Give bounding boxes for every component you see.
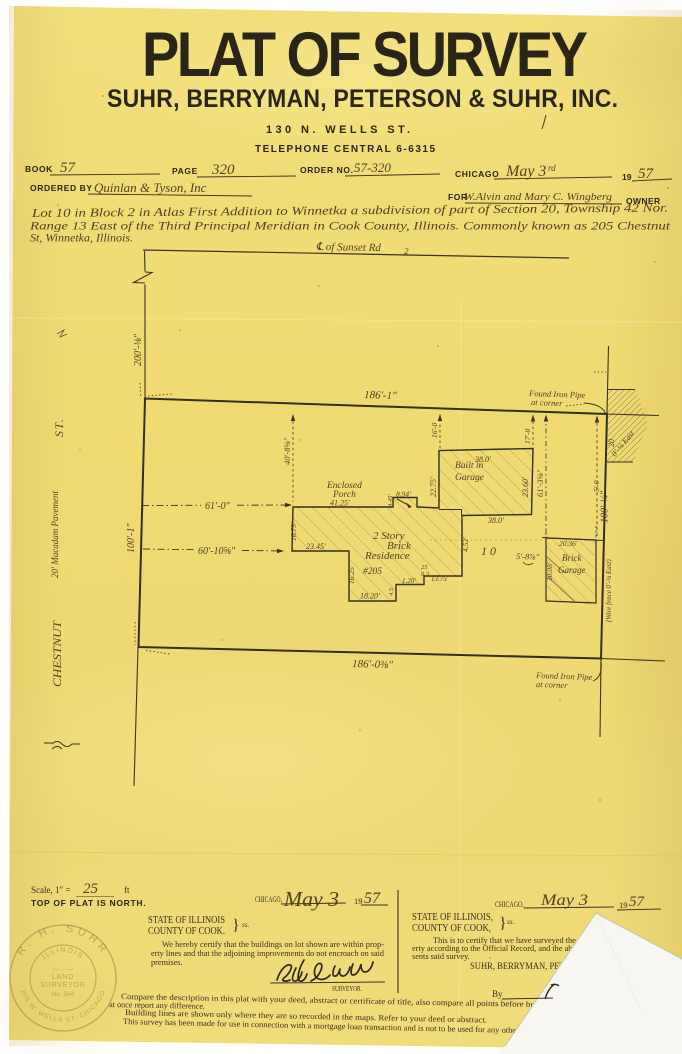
svg-text:May 3: May 3: [540, 892, 588, 909]
svg-text:ORDER NO.: ORDER NO.: [300, 165, 354, 175]
svg-text:18.20′: 18.20′: [360, 592, 380, 601]
svg-text:COUNTY OF COOK,: COUNTY OF COOK,: [412, 923, 491, 934]
svg-text:}: }: [499, 915, 507, 932]
svg-text:20.36′: 20.36′: [559, 539, 578, 548]
svg-text:LAND: LAND: [52, 974, 75, 981]
svg-text:4.5: 4.5: [388, 587, 395, 596]
svg-text:1.20′: 1.20′: [402, 577, 416, 585]
svg-text:May 3: May 3: [283, 887, 339, 911]
svg-text:TELEPHONE CENTRAL 6-6315: TELEPHONE CENTRAL 6-6315: [255, 144, 435, 155]
svg-text:16.75′: 16.75′: [289, 522, 298, 541]
svg-text:ss.: ss.: [242, 921, 249, 929]
svg-text:No. 564: No. 564: [52, 991, 75, 998]
svg-text:30.08′: 30.08′: [545, 562, 554, 582]
svg-text:℄ of Sunset Rd: ℄ of Sunset Rd: [316, 241, 382, 254]
svg-text:at corner: at corner: [536, 679, 568, 690]
svg-text:premises.: premises.: [151, 958, 183, 967]
svg-text:186′-1″: 186′-1″: [364, 389, 397, 402]
svg-text:May 3: May 3: [505, 163, 546, 180]
svg-text:200′-⅛″: 200′-⅛″: [133, 333, 144, 366]
svg-text:#205: #205: [363, 567, 382, 577]
svg-text:57: 57: [364, 890, 381, 907]
svg-text:}: }: [232, 917, 240, 934]
svg-text:19: 19: [354, 896, 363, 906]
svg-text:57: 57: [60, 160, 77, 176]
svg-text:38.0′: 38.0′: [474, 455, 491, 464]
svg-text:20: 20: [607, 439, 616, 447]
svg-text:PLAT OF SURVEY: PLAT OF SURVEY: [142, 19, 588, 90]
svg-text:13.75′: 13.75′: [431, 575, 449, 583]
svg-text:ft: ft: [124, 885, 130, 895]
svg-text:ST.: ST.: [52, 418, 66, 437]
svg-text:186′-0⅜″: 186′-0⅜″: [352, 658, 394, 671]
svg-text:19: 19: [622, 172, 632, 182]
svg-text:CHESTNUT: CHESTNUT: [50, 620, 64, 687]
svg-text:SUHR, BERRYMAN, PETE: SUHR, BERRYMAN, PETE: [470, 961, 570, 971]
svg-text:25: 25: [83, 881, 99, 897]
svg-text:at corner: at corner: [531, 397, 563, 408]
svg-text:61′-0″: 61′-0″: [205, 501, 231, 512]
svg-text:SUHR, BERRYMAN, PETERSON & SUH: SUHR, BERRYMAN, PETERSON & SUHR, INC.: [107, 85, 618, 113]
svg-text:STATE OF ILLINOIS,: STATE OF ILLINOIS,: [412, 912, 493, 923]
svg-text:rd: rd: [548, 163, 556, 173]
svg-text:320: 320: [211, 162, 235, 178]
svg-text:40′-8⅝″: 40′-8⅝″: [282, 437, 292, 465]
svg-text:Scale, 1″ =: Scale, 1″ =: [31, 885, 71, 895]
svg-text:SURVEYOR.: SURVEYOR.: [332, 985, 362, 993]
svg-text:Quinlan & Tyson, Inc: Quinlan & Tyson, Inc: [94, 180, 207, 195]
svg-text:— · —: — · —: [52, 966, 73, 973]
svg-text:Residence: Residence: [364, 550, 410, 562]
svg-text:16.25′: 16.25′: [347, 565, 356, 584]
svg-text:PAGE: PAGE: [172, 166, 198, 176]
svg-text:BOOK: BOOK: [25, 164, 53, 174]
svg-text:4.52′: 4.52′: [461, 537, 470, 552]
svg-text:57: 57: [638, 166, 655, 182]
svg-text:100′-¼″: 100′-¼″: [600, 490, 611, 523]
svg-text:5′-8⅞″: 5′-8⅞″: [516, 551, 540, 562]
svg-text:5′-0: 5′-0: [592, 480, 601, 492]
svg-text:Garage: Garage: [558, 565, 586, 575]
svg-text:ss.: ss.: [507, 918, 514, 926]
svg-text:4.45′: 4.45′: [387, 494, 394, 507]
svg-text:6.3: 6.3: [421, 571, 430, 578]
svg-text:100′-1″: 100′-1″: [126, 522, 137, 553]
svg-text:erty lines and that the adjoin: erty lines and that the adjoining improv…: [151, 949, 385, 958]
svg-text:St, Winnetka, Illinois.: St, Winnetka, Illinois.: [30, 231, 133, 245]
svg-text:CHICAGO: CHICAGO: [455, 169, 499, 179]
svg-text:1 0: 1 0: [481, 544, 496, 558]
svg-text:25: 25: [421, 564, 428, 571]
svg-text:(Wire fence 0′-¼ East): (Wire fence 0′-¼ East): [605, 559, 613, 622]
svg-text:We hereby certify that the bui: We hereby certify that the buildings on …: [162, 940, 384, 949]
svg-text:60′-10⅝″: 60′-10⅝″: [198, 546, 236, 557]
svg-text:22.75′: 22.75′: [429, 477, 438, 497]
svg-text:57-320: 57-320: [354, 160, 391, 175]
svg-text:16′-0: 16′-0: [430, 422, 439, 438]
svg-text:2: 2: [404, 246, 409, 256]
svg-text:CHICAGO,: CHICAGO,: [495, 900, 524, 909]
svg-text:19: 19: [619, 900, 628, 910]
svg-text:8.94′: 8.94′: [396, 490, 411, 499]
svg-text:57: 57: [629, 894, 646, 910]
svg-text:38.0′: 38.0′: [487, 516, 504, 525]
svg-text:17′-0: 17′-0: [523, 428, 532, 444]
svg-text:COUNTY OF COOK.: COUNTY OF COOK.: [148, 926, 225, 937]
svg-text:By: By: [492, 989, 503, 999]
svg-text:SURVEYOR: SURVEYOR: [40, 982, 86, 989]
svg-text:sents said survey.: sents said survey.: [412, 952, 470, 961]
svg-text:STATE OF ILLINOIS: STATE OF ILLINOIS: [148, 915, 225, 926]
svg-text:23.45′: 23.45′: [306, 542, 326, 551]
svg-text:20′ Macadam Pavement: 20′ Macadam Pavement: [50, 491, 60, 578]
svg-text:CHICAGO,: CHICAGO,: [255, 895, 282, 904]
svg-text:41.25′: 41.25′: [330, 499, 350, 508]
svg-text:Garage: Garage: [455, 473, 484, 483]
svg-text:61′-3⅝″: 61′-3⅝″: [535, 469, 545, 497]
svg-text:ORDERED BY: ORDERED BY: [30, 183, 93, 193]
svg-text:Brick: Brick: [562, 553, 582, 563]
svg-text:TOP OF PLAT IS NORTH.: TOP OF PLAT IS NORTH.: [31, 898, 146, 908]
svg-text:23.60′: 23.60′: [521, 477, 530, 497]
